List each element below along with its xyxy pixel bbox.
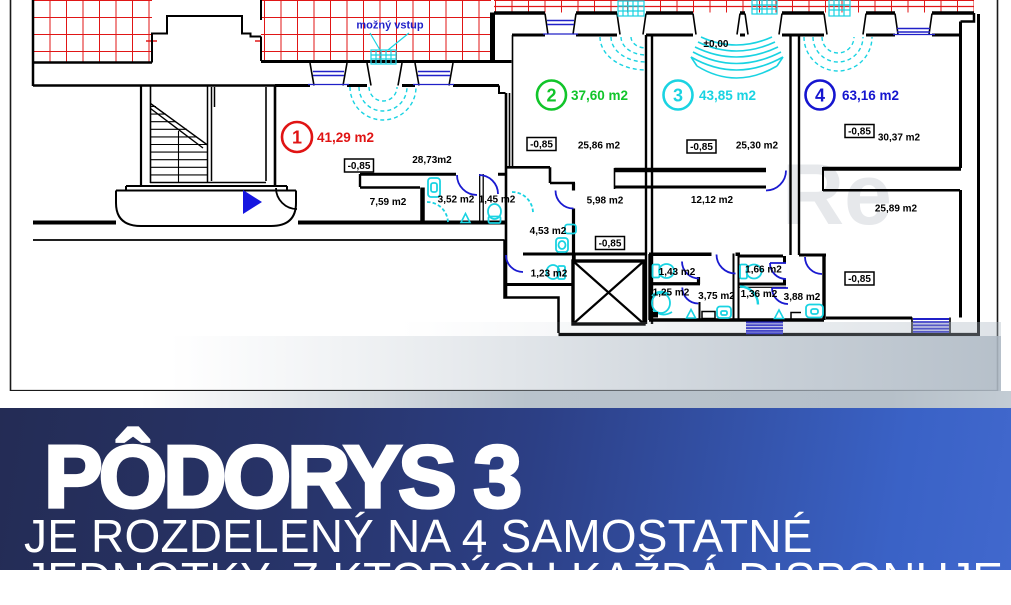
svg-text:1: 1 bbox=[292, 128, 302, 148]
svg-text:1,66 m2: 1,66 m2 bbox=[745, 265, 782, 276]
svg-text:25,86 m2: 25,86 m2 bbox=[578, 141, 621, 152]
svg-text:2: 2 bbox=[546, 86, 556, 106]
svg-text:-0,85: -0,85 bbox=[530, 140, 553, 151]
svg-text:43,85 m2: 43,85 m2 bbox=[699, 88, 756, 103]
svg-text:25,89 m2: 25,89 m2 bbox=[875, 204, 918, 215]
svg-text:41,29 m2: 41,29 m2 bbox=[317, 130, 374, 145]
svg-text:5,98 m2: 5,98 m2 bbox=[587, 196, 624, 207]
svg-text:28,73m2: 28,73m2 bbox=[412, 155, 452, 166]
svg-text:3,52 m2: 3,52 m2 bbox=[438, 195, 475, 206]
svg-text:-0,85: -0,85 bbox=[848, 127, 871, 138]
svg-text:30,37 m2: 30,37 m2 bbox=[878, 133, 921, 144]
svg-text:4: 4 bbox=[815, 86, 825, 106]
svg-text:37,60 m2: 37,60 m2 bbox=[571, 88, 628, 103]
svg-text:3,75 m2: 3,75 m2 bbox=[698, 291, 735, 302]
svg-text:63,16 m2: 63,16 m2 bbox=[842, 88, 899, 103]
svg-text:-0,85: -0,85 bbox=[848, 274, 871, 285]
svg-text:1,23 m2: 1,23 m2 bbox=[531, 269, 568, 280]
svg-text:-0,85: -0,85 bbox=[348, 161, 371, 172]
svg-text:1,45 m2: 1,45 m2 bbox=[479, 195, 516, 206]
svg-text:možný vstup: možný vstup bbox=[356, 20, 424, 32]
svg-text:±0,00: ±0,00 bbox=[704, 39, 729, 50]
svg-text:3,88 m2: 3,88 m2 bbox=[784, 292, 821, 303]
svg-text:1,25 m2: 1,25 m2 bbox=[653, 288, 690, 299]
svg-text:3: 3 bbox=[673, 86, 683, 106]
svg-text:1,36 m2: 1,36 m2 bbox=[741, 289, 778, 300]
svg-text:7,59 m2: 7,59 m2 bbox=[370, 197, 407, 208]
svg-text:-0,85: -0,85 bbox=[599, 239, 622, 250]
svg-text:1,43 m2: 1,43 m2 bbox=[659, 267, 696, 278]
svg-text:-0,85: -0,85 bbox=[690, 142, 713, 153]
svg-text:4,53 m2: 4,53 m2 bbox=[530, 226, 567, 237]
svg-text:12,12 m2: 12,12 m2 bbox=[691, 195, 734, 206]
svg-text:25,30 m2: 25,30 m2 bbox=[736, 141, 779, 152]
